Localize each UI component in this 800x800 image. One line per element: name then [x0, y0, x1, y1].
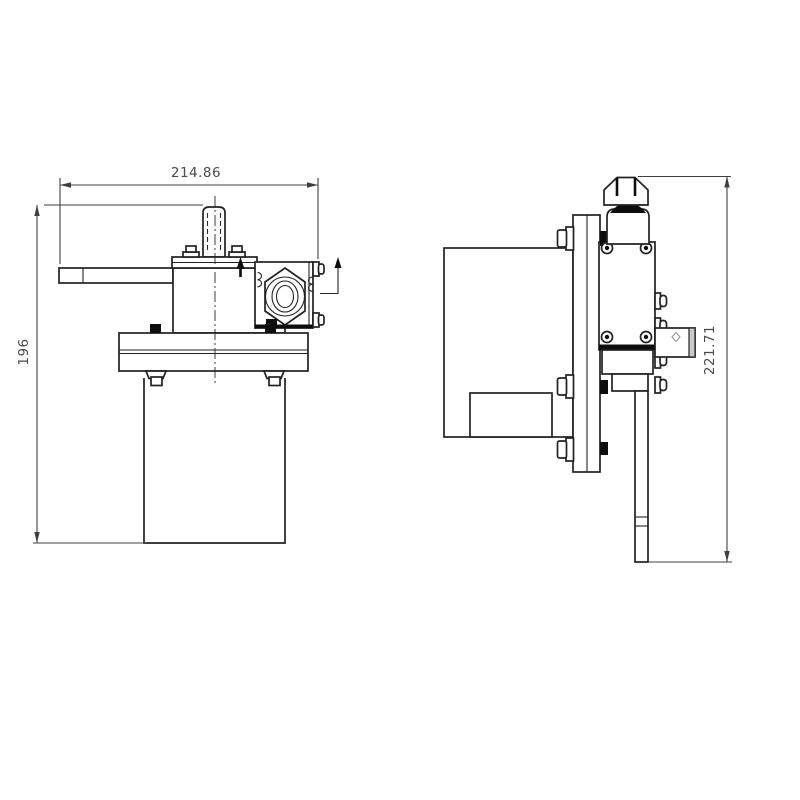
side-spacer-bottom — [600, 442, 608, 455]
side-terminal-bolt-4 — [655, 377, 667, 393]
side-spacer-middle — [600, 380, 608, 394]
front-flange-foot-right — [264, 371, 284, 386]
side-lower-bracket — [602, 350, 653, 374]
front-flange-bolt-right — [265, 324, 276, 333]
front-motor-body — [144, 378, 285, 543]
technical-drawing-canvas: 214.86 196 221.71 — [0, 0, 800, 800]
side-gland-body — [607, 209, 649, 244]
rotation-arrow-icon — [320, 257, 342, 294]
side-nameplate — [470, 393, 552, 437]
side-flange-bolt-bottom — [558, 438, 574, 461]
side-flange-bolt-middle — [558, 375, 574, 398]
front-gearbox-side-bolt-bottom — [313, 313, 324, 327]
side-output-shaft — [655, 328, 695, 357]
front-view — [59, 196, 342, 543]
front-gearbox-side-bolt-top — [313, 262, 324, 276]
dim-label-side-height: 221.71 — [702, 325, 718, 375]
dimension-height-front: 196 — [16, 205, 203, 543]
side-lever-arm-edge — [635, 391, 648, 562]
front-shaft — [203, 207, 225, 257]
drawing-sheet: 214.86 196 221.71 — [0, 0, 800, 800]
side-flange-bolt-top — [558, 227, 574, 250]
front-plate-bolt-left — [183, 246, 199, 257]
front-flange-bolt-left — [150, 324, 161, 333]
front-flange-foot-left — [146, 371, 166, 386]
front-plate-bolt-right — [229, 246, 245, 257]
front-flange — [119, 333, 308, 371]
dim-label-front-height: 196 — [16, 338, 32, 365]
side-bracket-step — [612, 374, 648, 391]
front-lever-arm — [59, 268, 173, 283]
side-view — [444, 178, 695, 563]
dim-label-front-width: 214.86 — [171, 165, 221, 181]
side-terminal-bolt-1 — [655, 293, 667, 309]
side-gland-hex-nut — [604, 178, 648, 206]
